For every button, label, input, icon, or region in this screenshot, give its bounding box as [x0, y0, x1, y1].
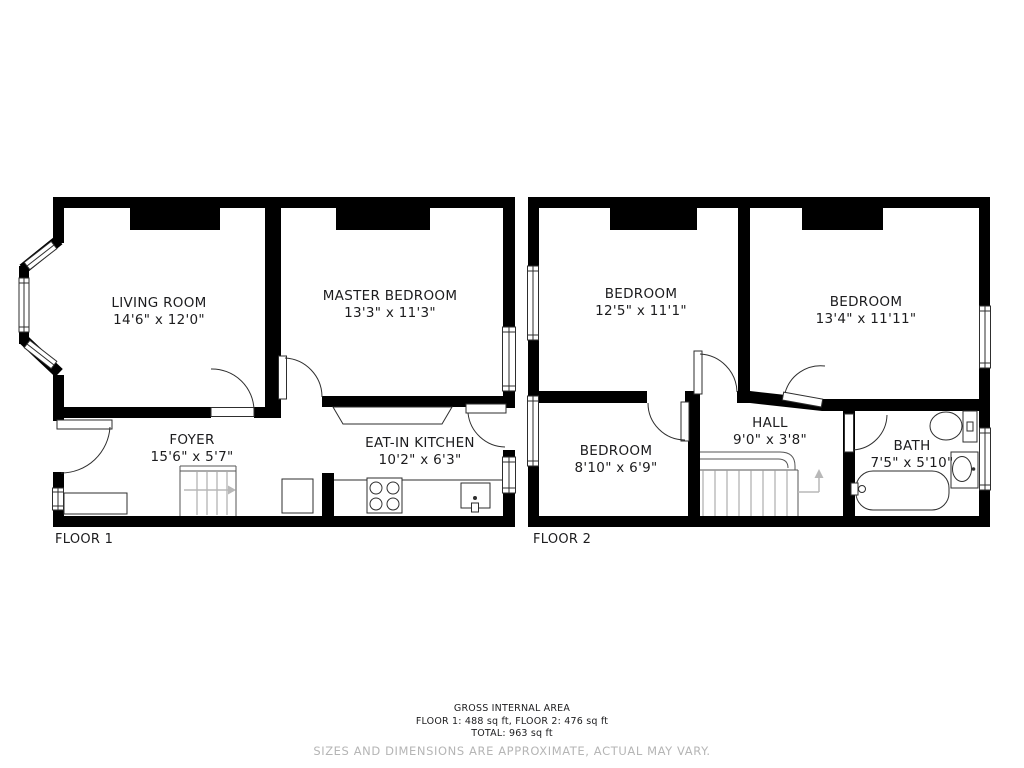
bathtub	[851, 471, 949, 510]
floorplan-drawing	[0, 0, 1024, 768]
stove	[367, 478, 402, 513]
room-label-hall: HALL 9'0" x 3'8"	[733, 415, 807, 449]
room-label-foyer: FOYER 15'6" x 5'7"	[151, 432, 234, 466]
foyer-bench	[64, 493, 127, 514]
hall-stairs	[700, 452, 824, 516]
room-name: EAT-IN KITCHEN	[365, 435, 475, 452]
kitchen-sink	[461, 483, 490, 512]
room-dims: 13'3" x 11'3"	[323, 305, 458, 322]
bedroom-right-window	[980, 306, 991, 368]
room-label-bedroom-left: BEDROOM 12'5" x 11'1"	[595, 286, 687, 320]
room-name: BATH	[871, 438, 954, 455]
room-dims: 13'4" x 11'11"	[816, 311, 917, 328]
bedroom-small-door	[648, 402, 689, 441]
room-dims: 14'6" x 12'0"	[111, 312, 206, 329]
foyer-window	[53, 488, 64, 510]
master-bedroom-door	[279, 356, 323, 399]
floor1-walls	[19, 197, 515, 527]
foyer-closet	[282, 479, 313, 513]
floor1-plan	[19, 197, 516, 527]
room-name: BEDROOM	[575, 443, 658, 460]
gross-area-title: GROSS INTERNAL AREA	[0, 703, 1024, 716]
foyer-stairs	[180, 466, 236, 516]
room-name: LIVING ROOM	[111, 295, 206, 312]
room-dims: 8'10" x 6'9"	[575, 460, 658, 477]
room-label-bath: BATH 7'5" x 5'10"	[871, 438, 954, 472]
footer: GROSS INTERNAL AREA FLOOR 1: 488 sq ft, …	[0, 703, 1024, 758]
total-area: TOTAL: 963 sq ft	[0, 728, 1024, 741]
floor-areas: FLOOR 1: 488 sq ft, FLOOR 2: 476 sq ft	[0, 716, 1024, 729]
bedroom-left-window	[528, 266, 539, 340]
room-dims: 12'5" x 11'1"	[595, 303, 687, 320]
room-label-bedroom-small: BEDROOM 8'10" x 6'9"	[575, 443, 658, 477]
bath-sink	[951, 452, 978, 488]
room-dims: 15'6" x 5'7"	[151, 449, 234, 466]
entry-door	[57, 420, 112, 473]
bedroom-small-window	[528, 396, 539, 466]
room-label-bedroom-right: BEDROOM 13'4" x 11'11"	[816, 294, 917, 328]
master-bedroom-window	[503, 327, 516, 391]
room-label-kitchen: EAT-IN KITCHEN 10'2" x 6'3"	[365, 435, 475, 469]
room-name: BEDROOM	[816, 294, 917, 311]
room-label-living-room: LIVING ROOM 14'6" x 12'0"	[111, 295, 206, 329]
bedroom-right-door	[782, 366, 825, 407]
bay-window	[19, 241, 57, 368]
room-name: FOYER	[151, 432, 234, 449]
kitchen-window	[503, 457, 516, 493]
room-name: MASTER BEDROOM	[323, 288, 458, 305]
floorplan-canvas: LIVING ROOM 14'6" x 12'0" MASTER BEDROOM…	[0, 0, 1024, 768]
room-dims: 10'2" x 6'3"	[365, 452, 475, 469]
room-name: HALL	[733, 415, 807, 432]
living-room-door	[211, 369, 254, 417]
floor2-label: FLOOR 2	[533, 532, 591, 547]
kitchen-counter	[333, 407, 452, 424]
bath-window	[980, 428, 991, 490]
room-label-master-bedroom: MASTER BEDROOM 13'3" x 11'3"	[323, 288, 458, 322]
disclaimer: SIZES AND DIMENSIONS ARE APPROXIMATE, AC…	[0, 744, 1024, 758]
room-dims: 9'0" x 3'8"	[733, 432, 807, 449]
floor2-plan	[528, 197, 991, 527]
floor1-label: FLOOR 1	[55, 532, 113, 547]
room-name: BEDROOM	[595, 286, 687, 303]
bedroom-left-door	[694, 351, 737, 394]
room-dims: 7'5" x 5'10"	[871, 455, 954, 472]
